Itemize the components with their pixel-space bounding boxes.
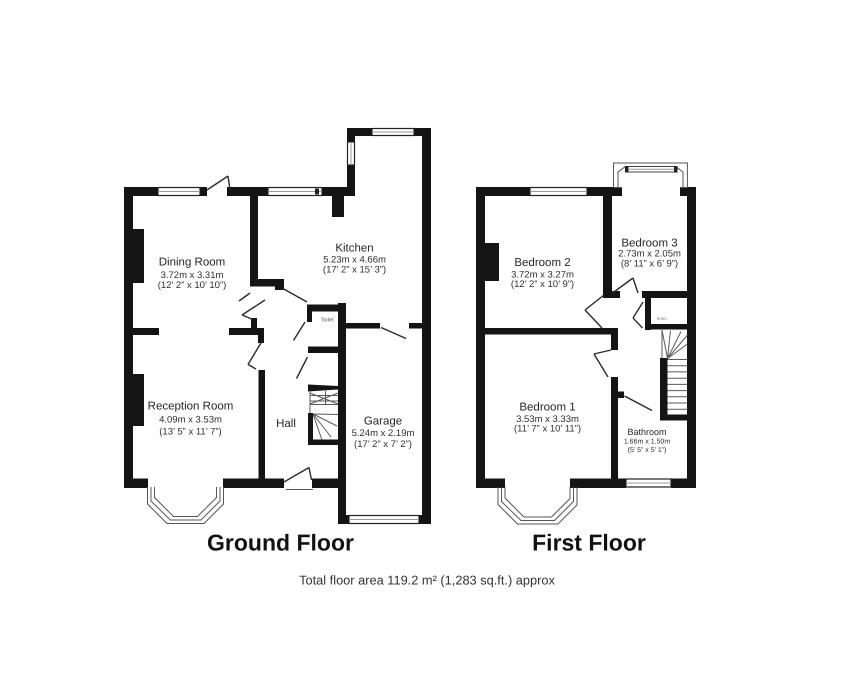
svg-text:Ground Floor: Ground Floor <box>207 530 354 556</box>
svg-text:Reception Room: Reception Room <box>148 401 234 413</box>
svg-text:Toilet: Toilet <box>321 318 334 324</box>
svg-text:(5’ 5” x 5’ 1”): (5’ 5” x 5’ 1”) <box>628 446 667 454</box>
svg-text:Garage: Garage <box>364 416 402 428</box>
svg-text:Total floor area 119.2 m² (1,2: Total floor area 119.2 m² (1,283 sq.ft.)… <box>299 573 555 588</box>
svg-text:4.09m x 3.53m: 4.09m x 3.53m <box>159 415 222 426</box>
svg-text:(12’ 2” x 10’ 10”): (12’ 2” x 10’ 10”) <box>158 280 226 291</box>
svg-text:5.24m x 2.19m: 5.24m x 2.19m <box>352 428 415 439</box>
svg-text:(17’ 2” x 7’ 2”): (17’ 2” x 7’ 2”) <box>354 439 412 450</box>
svg-text:Hall: Hall <box>276 418 296 430</box>
svg-text:Kitchen: Kitchen <box>335 243 373 255</box>
svg-text:Bathroom: Bathroom <box>627 427 666 437</box>
svg-text:Bedroom 2: Bedroom 2 <box>514 257 570 269</box>
svg-text:(8’ 11” x 6’ 9”): (8’ 11” x 6’ 9”) <box>621 259 678 270</box>
svg-text:(12’ 2” x 10’ 9”): (12’ 2” x 10’ 9”) <box>511 279 574 290</box>
svg-text:Dining Room: Dining Room <box>159 257 225 269</box>
svg-text:linen: linen <box>657 316 667 321</box>
svg-text:First Floor: First Floor <box>532 530 646 556</box>
svg-text:(13’ 5” x 11’ 7”): (13’ 5” x 11’ 7”) <box>159 427 221 438</box>
svg-text:Bedroom 3: Bedroom 3 <box>621 237 677 249</box>
svg-text:1.66m x 1.50m: 1.66m x 1.50m <box>624 439 670 446</box>
svg-text:(17’ 2” x 15’ 3”): (17’ 2” x 15’ 3”) <box>323 265 386 276</box>
svg-text:Bedroom 1: Bedroom 1 <box>519 402 575 414</box>
svg-text:(11’ 7” x 10’ 11”): (11’ 7” x 10’ 11”) <box>514 424 581 435</box>
